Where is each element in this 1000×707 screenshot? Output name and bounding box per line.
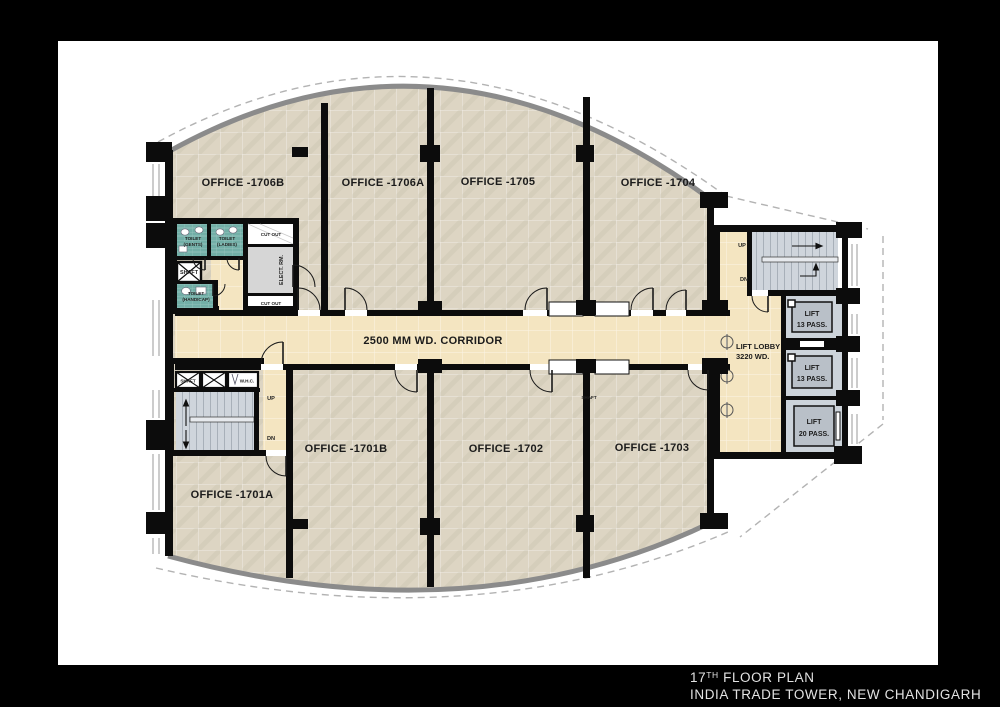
lift3-label-2: 20 PASS.: [799, 431, 829, 438]
cutout-top-label: CUT OUT: [261, 232, 282, 237]
shaft-label-corridor: SHAFT: [581, 395, 597, 400]
title-floor-num: 17: [690, 670, 706, 685]
office-1702-label: OFFICE -1702: [469, 443, 544, 455]
stair-up-label-sw: UP: [267, 396, 275, 402]
toilet-ladies: [211, 224, 243, 258]
toilet-handicap-label-2: (HANDICAP): [182, 297, 210, 302]
office-1705-label: OFFICE -1705: [461, 176, 536, 188]
electrical-room-label: ELECT. RM.: [279, 255, 285, 285]
stair-lobby-floor: [263, 370, 290, 456]
toilet-gents-label-2: (GENTS): [184, 242, 203, 247]
toilet-handicap-label-1: TOILET: [188, 291, 204, 296]
corridor-label: 2500 MM WD. CORRIDOR: [363, 335, 502, 347]
lift1-label-2: 13 PASS.: [797, 322, 827, 329]
office-1704-label: OFFICE -1704: [621, 177, 696, 189]
lift3-label-1: LIFT: [807, 419, 822, 426]
cutout-bottom-label: CUT OUT: [261, 301, 282, 306]
floor-plan-sheet: TOILET (GENTS) TOILET (LADIES) SHAFT TOI…: [0, 0, 1000, 707]
stair-landing-ne: [762, 257, 838, 262]
toilet-gents-label-1: TOILET: [185, 236, 201, 241]
toilet-handicap: [177, 284, 213, 308]
floor-plan-drawing: TOILET (GENTS) TOILET (LADIES) SHAFT TOI…: [0, 0, 1000, 707]
electrical-block: CUT OUT ELECT. RM. CUT OUT: [243, 218, 299, 312]
stair-dn-label-sw: DN: [267, 436, 275, 442]
stair-up-label-ne: UP: [738, 243, 746, 249]
stair-dn-label-ne: DN: [740, 277, 748, 283]
wc-label: W.H.C.: [240, 379, 255, 384]
toilet-ladies-label-2: (LADIES): [217, 242, 237, 247]
lift1-label-1: LIFT: [805, 311, 820, 318]
office-1706b-label: OFFICE -1706B: [202, 177, 285, 189]
lift-lobby-label-2: 3220 WD.: [736, 352, 769, 361]
lift2-label-1: LIFT: [805, 365, 820, 372]
title-address: INDIA TRADE TOWER, NEW CHANDIGARH: [690, 687, 981, 702]
office-1701a-label: OFFICE -1701A: [191, 489, 274, 501]
toilet-gents: [177, 224, 209, 258]
office-1703-label: OFFICE -1703: [615, 442, 690, 454]
shaft-label-sw: SHAFT: [180, 379, 196, 384]
office-1701b-label: OFFICE -1701B: [305, 443, 388, 455]
lift2-label-2: 13 PASS.: [797, 376, 827, 383]
shaft-label-top: SHAFT: [180, 270, 199, 276]
title-floor-rest: FLOOR PLAN: [719, 670, 815, 685]
lift-lobby-label-1: LIFT LOBBY: [736, 342, 780, 351]
office-1706a-label: OFFICE -1706A: [342, 177, 425, 189]
electrical-room: [248, 247, 293, 293]
left-wall: [165, 150, 173, 556]
toilet-ladies-label-1: TOILET: [219, 236, 235, 241]
title-floor-sup: TH: [706, 670, 719, 680]
shaft-box-sw-2: [202, 372, 226, 388]
stair-landing-sw: [190, 417, 254, 422]
